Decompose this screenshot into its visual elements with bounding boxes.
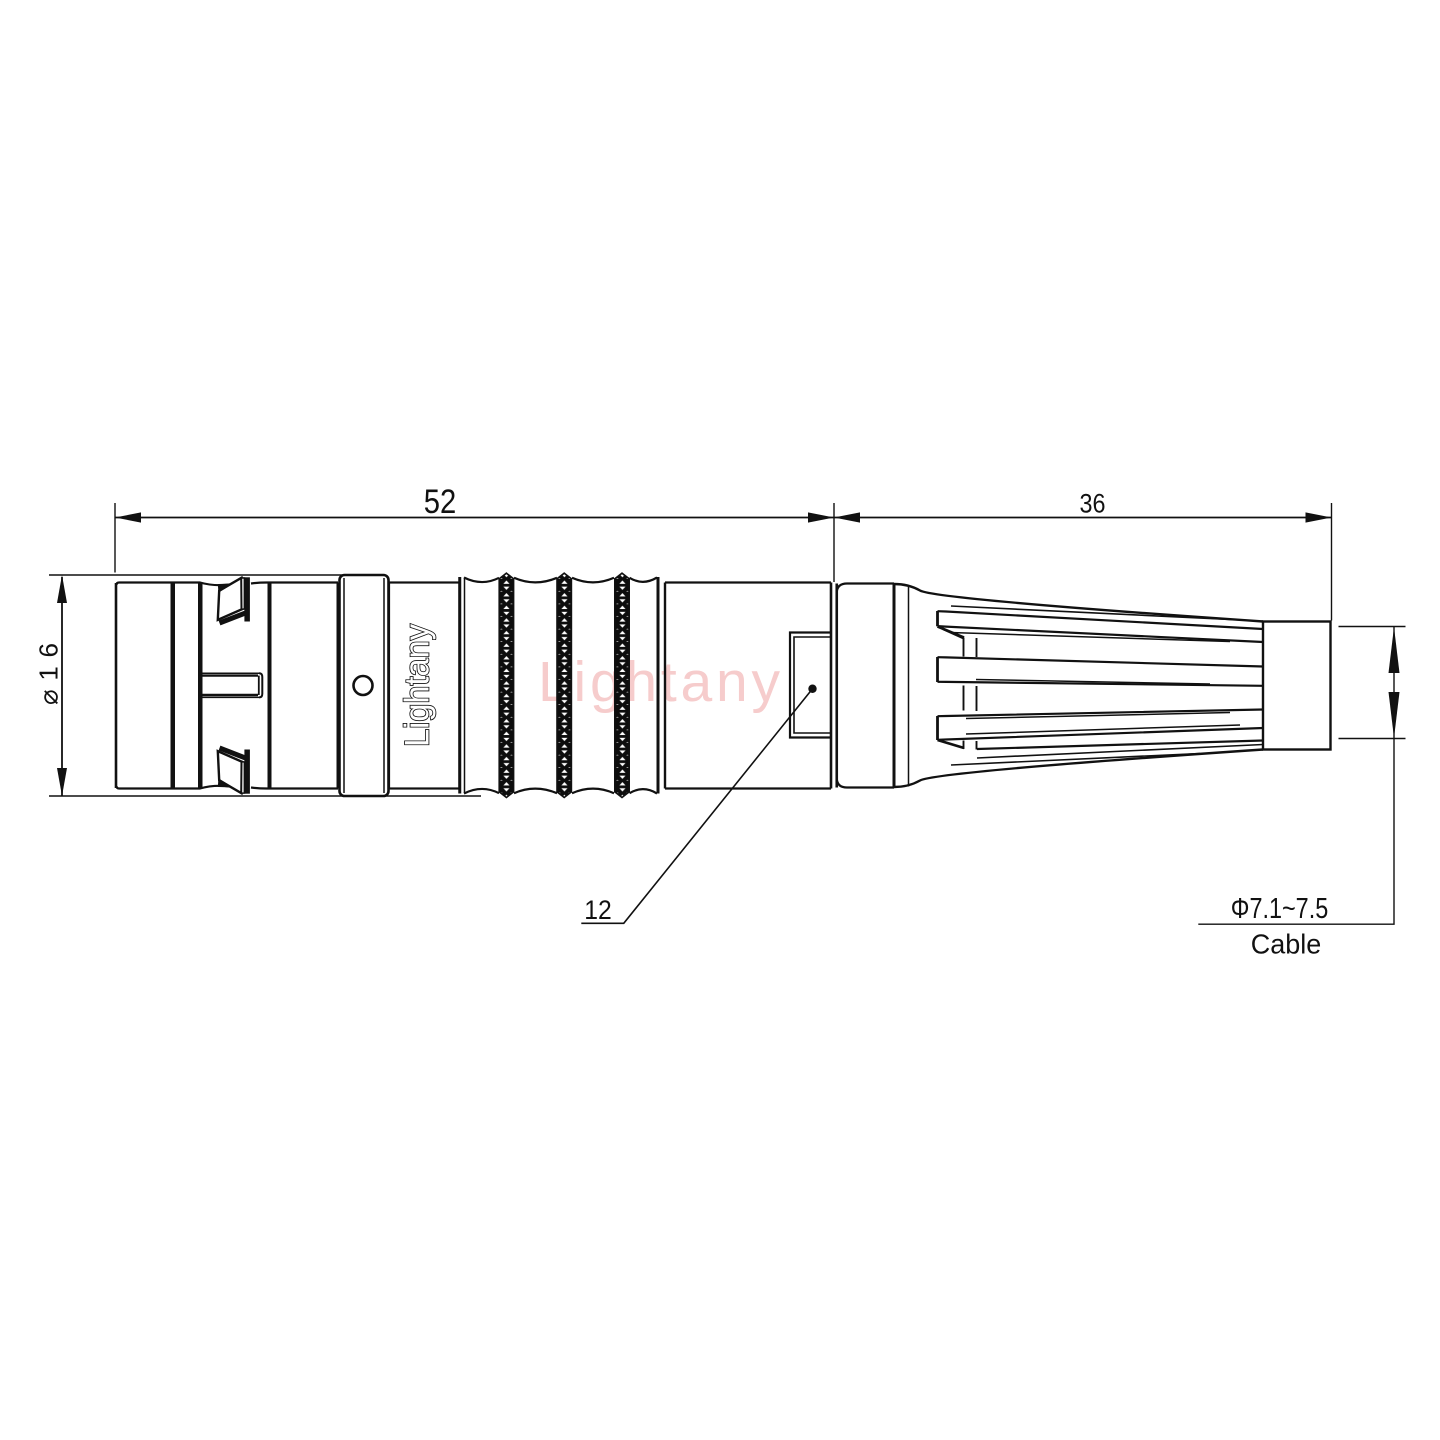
svg-text:Φ7.1~7.5: Φ7.1~7.5 — [1231, 893, 1329, 925]
svg-text:36: 36 — [1080, 489, 1106, 519]
svg-text:52: 52 — [424, 483, 457, 521]
svg-text:12: 12 — [584, 895, 612, 925]
svg-text:Lightany: Lightany — [399, 624, 437, 747]
svg-text:Cable: Cable — [1251, 929, 1322, 960]
svg-text:⌀16: ⌀16 — [34, 643, 64, 705]
